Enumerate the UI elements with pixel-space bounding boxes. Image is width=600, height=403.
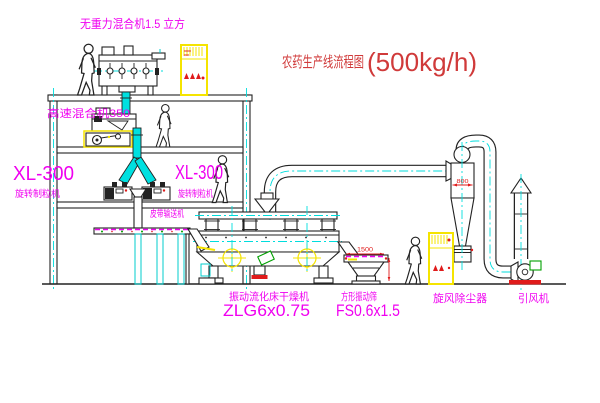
hs-mixer-discharge-pipe <box>133 128 141 158</box>
title-capacity: (500kg/h) <box>367 47 477 77</box>
label-cyclone: 旋风除尘器 <box>433 291 487 305</box>
collection-drum <box>454 246 471 262</box>
cyclone-separator: 800 <box>446 142 474 270</box>
cabinet-indicator <box>184 73 205 80</box>
label-granulator-right-model: XL-300 <box>175 162 223 184</box>
gravity-free-mixer <box>93 46 165 115</box>
flow-diagram-canvas: 800 <box>0 0 600 403</box>
control-cabinet-top <box>181 45 207 95</box>
cabinet-louvers <box>432 235 447 244</box>
vibration-motor <box>252 266 268 279</box>
dimension-value: 800 <box>457 179 469 185</box>
person-top-floor <box>78 44 96 95</box>
y-splitter-duct <box>119 157 156 184</box>
label-dryer-model: ZLG6x0.75 <box>223 301 310 320</box>
dryer-legs <box>204 266 333 283</box>
dimension-value: 1500 <box>357 248 374 254</box>
granulator-right <box>142 182 170 200</box>
label-sieve-model: FS0.6x1.5 <box>336 301 400 320</box>
sieve-height-dimension <box>388 258 391 281</box>
person-ground <box>405 237 421 284</box>
label-granulator-left-model: XL-300 <box>13 163 74 185</box>
control-cabinet-right <box>429 233 453 284</box>
fan-base <box>509 280 541 285</box>
label-belt-conveyor: 皮带输送机 <box>150 208 184 220</box>
label-gravity-mixer: 无重力混合机1.5 立方 <box>80 16 185 31</box>
belt-conveyor <box>94 228 215 284</box>
fan-motor <box>530 261 541 270</box>
cabinet-indicator <box>433 265 450 271</box>
person-second-floor <box>156 104 171 147</box>
title-cn: 农药生产线流程图 <box>282 54 364 71</box>
induced-draft-fan <box>509 261 541 285</box>
label-granulator-right-name: 旋转制粒机 <box>178 188 213 200</box>
label-fan: 引风机 <box>518 291 549 305</box>
granulator-left <box>104 182 132 200</box>
label-granulator-left-name: 旋转制粒机 <box>15 188 60 200</box>
label-high-speed-mixer: 高速混合机350 <box>47 106 130 120</box>
